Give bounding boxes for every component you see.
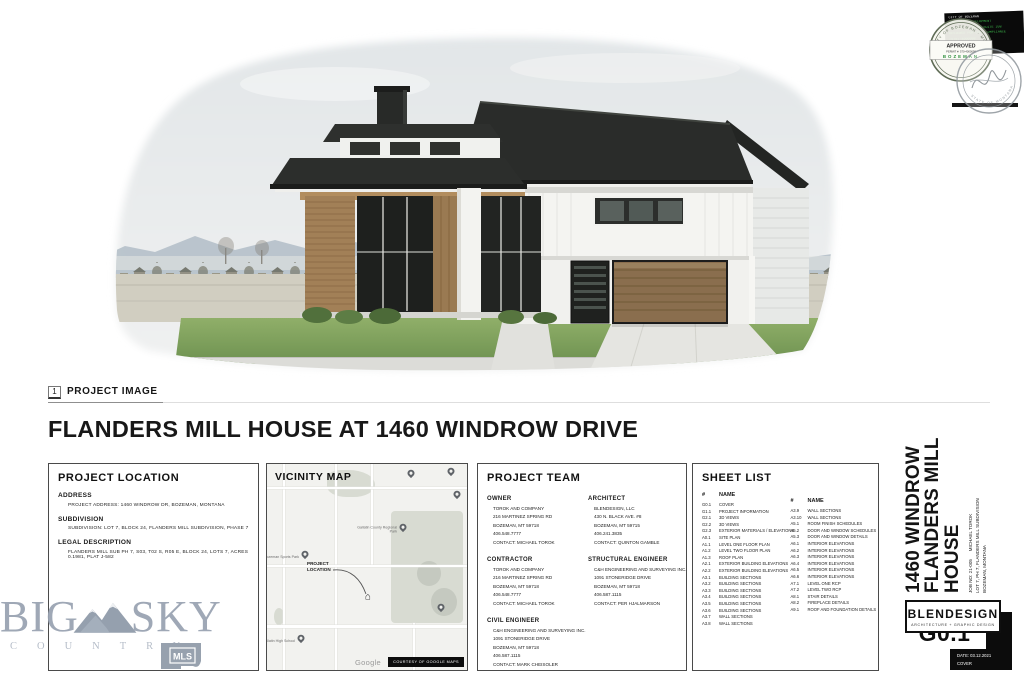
sheet-list-row: A1.3ROOF PLAN: [702, 555, 781, 560]
project-team-columns: OWNERTOROK AND COMPANY216 MARTINEZ SPRIN…: [487, 484, 677, 667]
team-line: 430 N. BLACK AVE. #8: [594, 514, 677, 519]
team-line: 406.241.3835: [594, 531, 677, 536]
sheet-list-row: A3.1BUILDING SECTIONS: [702, 575, 781, 580]
sheet-number-header: #: [702, 492, 719, 498]
team-line: 406.587.1115: [493, 653, 576, 658]
sheet-number-cell: A6.3: [791, 554, 808, 559]
location-section-text: FLANDERS MILL SUB PH 7, S03, T02 S, R05 …: [68, 550, 249, 560]
sheet-list-row: A8.2FIREPLACE DETAILS: [791, 600, 870, 605]
sheet-list-row: A3.7WALL SECTIONS: [702, 614, 781, 619]
wood-door: [433, 196, 457, 314]
sheet-number-cell: G0.1: [702, 502, 719, 507]
sheet-number-cell: A2.2: [702, 568, 719, 573]
sheet-number-cell: A8.2: [791, 600, 808, 605]
sheet-list-row: A5.1ROOM FINISH SCHEDULES: [791, 521, 870, 526]
sheet-number-cell: A3.10: [791, 515, 808, 520]
sheet-list-columns: #NAMEG0.1COVERG1.1PROJECT INFORMATIONG2.…: [702, 492, 869, 626]
team-line: TOROK AND COMPANY: [493, 567, 576, 572]
cloud: [510, 53, 740, 83]
vicinity-map: PROJECT LOCATION ⌂ Google COURTESY OF GO…: [267, 464, 467, 670]
sheet-list-row: A3.8WALL SECTIONS: [702, 621, 781, 626]
sheet-number-cell: A6.5: [791, 567, 808, 572]
sheet-list-panel: SHEET LIST #NAMEG0.1COVERG1.1PROJECT INF…: [692, 463, 879, 671]
sheet-name-cell: 3D VIEWS: [719, 522, 739, 527]
sheet-name-cell: LEVEL ONE FLOOR PLAN: [719, 542, 770, 547]
sheet-list-row: A3.4BUILDING SECTIONS: [702, 594, 781, 599]
sheet-name-cell: DOOR AND WINDOW DETAILS: [808, 534, 868, 539]
team-line: C&H ENGINEERING AND SURVEYING INC.: [594, 567, 677, 572]
figure-label: PROJECT IMAGE: [67, 386, 158, 397]
sheet-name-cell: ROOF PLAN: [719, 555, 743, 560]
sheet-number-cell: A5.1: [791, 521, 808, 526]
figure-rule: [48, 402, 990, 403]
sheet-name-cell: ROOF AND FOUNDATION DETAILS: [808, 607, 877, 612]
sheet-name-cell: BUILDING SECTIONS: [719, 581, 761, 586]
sheet-list-row: A6.3INTERIOR ELEVATIONS: [791, 554, 870, 559]
project-team-panel: PROJECT TEAM OWNERTOROK AND COMPANY216 M…: [477, 463, 687, 671]
sheet-list-row: A1.1LEVEL ONE FLOOR PLAN: [702, 542, 781, 547]
sheet-name-cell: 3D VIEWS: [719, 515, 739, 520]
sheet-number-cell: A1.1: [702, 542, 719, 547]
sheet-list-row: G2.23D VIEWS: [702, 522, 781, 527]
map-pin-label: Bozeman Sports Park: [266, 554, 305, 558]
team-role-label: CONTRACTOR: [487, 557, 576, 563]
sheet-name-cell: INTERIOR ELEVATIONS: [808, 574, 855, 579]
team-line: CONTACT: MICHAEL TOROK: [493, 540, 576, 545]
sheet-name-cell: INTERIOR ELEVATIONS: [808, 541, 855, 546]
sheet-list-row: A3.5BUILDING SECTIONS: [702, 601, 781, 606]
sheet-list-row: A7.2LEVEL TWO RCP: [791, 587, 870, 592]
titleblock-project-title: 1460 WINDROW FLANDERS MILL HOUSE: [904, 421, 962, 593]
project-location-marker-icon: ⌂: [365, 592, 371, 603]
architect-logo: BLENDESIGN: [907, 607, 999, 621]
sheet-number-cell: A6.6: [791, 574, 808, 579]
porch-window-2: [481, 196, 541, 312]
team-line: CONTACT: PER HJALMARSON: [594, 601, 677, 606]
project-location-heading: PROJECT LOCATION: [58, 472, 249, 484]
sheet-name-cell: WALL SECTIONS: [719, 621, 753, 626]
team-line: BOZEMAN, MT 59718: [493, 645, 576, 650]
sheet-name-cell: ROOM FINISH SCHEDULES: [808, 521, 863, 526]
porch-window-wall: [357, 196, 433, 312]
sheet-number-cell: A7.2: [791, 587, 808, 592]
team-line: BOZEMAN, MT 59715: [594, 523, 677, 528]
team-line: 406.587.1115: [594, 592, 677, 597]
sheet-name-cell: WALL SECTIONS: [808, 515, 842, 520]
sheet-list-row: A3.10WALL SECTIONS: [791, 515, 870, 520]
sheet-name-cell: STAIR DETAILS: [808, 594, 838, 599]
sheet-name-cell: WALL SECTIONS: [808, 508, 842, 513]
map-project-location-label: PROJECT LOCATION: [307, 561, 343, 573]
sheet-number-cell: A6.4: [791, 561, 808, 566]
titleblock-job-info: JOB NO: 21-005 MICHAEL TOROK LOT 7, PH 7…: [967, 421, 988, 593]
team-line: 406.548.7777: [493, 531, 576, 536]
location-section-label: LEGAL DESCRIPTION: [58, 539, 249, 546]
porch-roof: [270, 158, 527, 188]
sheet-name-cell: COVER: [719, 502, 734, 507]
sheet-number-cell: A3.8: [702, 621, 719, 626]
sheet-list-row: A3.3BUILDING SECTIONS: [702, 588, 781, 593]
sheet-number-cell: G2.3: [702, 528, 719, 533]
project-team-column: OWNERTOROK AND COMPANY216 MARTINEZ SPRIN…: [487, 484, 576, 667]
architect-tagline: ARCHITECTURE + GRAPHIC DESIGN: [907, 623, 999, 627]
team-role-label: ARCHITECT: [588, 496, 677, 502]
sheet-name-cell: INTERIOR ELEVATIONS: [808, 554, 855, 559]
team-line: 1091 STONERIDGE DRIVE: [493, 636, 576, 641]
sheet-list-row: A3.9WALL SECTIONS: [791, 508, 870, 513]
sheet-number-cell: A1.3: [702, 555, 719, 560]
vicinity-map-heading: VICINITY MAP: [275, 471, 351, 483]
sheet-list-row: A5.3DOOR AND WINDOW DETAILS: [791, 534, 870, 539]
team-role-label: STRUCTURAL ENGINEER: [588, 557, 677, 563]
sheet-list-row: G2.3EXTERIOR MATERIALS / ELEVATIONS: [702, 528, 781, 533]
team-line: BOZEMAN, MT 59718: [493, 584, 576, 589]
sheet-list-row: A6.5INTERIOR ELEVATIONS: [791, 567, 870, 572]
sheet-name-cell: EXTERIOR BUILDING ELEVATIONS: [719, 561, 788, 566]
map-courtesy-note: COURTESY OF GOOGLE MAPS: [388, 657, 464, 667]
sheet-name-header: NAME: [719, 492, 735, 498]
team-line: BOZEMAN, MT 59718: [594, 584, 677, 589]
project-location-panel: PROJECT LOCATION ADDRESSPROJECT ADDRESS:…: [48, 463, 259, 671]
sheet-name-cell: FIREPLACE DETAILS: [808, 600, 850, 605]
sheet-list-row: A6.4INTERIOR ELEVATIONS: [791, 561, 870, 566]
team-role-label: OWNER: [487, 496, 576, 502]
sheet-name-cell: BUILDING SECTIONS: [719, 601, 761, 606]
team-line: C&H ENGINEERING AND SURVEYING INC.: [493, 628, 576, 633]
sheet-number-cell: G2.1: [702, 515, 719, 520]
team-line: 216 MARTINEZ SPRING RD: [493, 514, 576, 519]
sheet-number-cell: A2.1: [702, 561, 719, 566]
sheet-number-cell: A3.4: [702, 594, 719, 599]
sheet-list-column: #NAMEG0.1COVERG1.1PROJECT INFORMATIONG2.…: [702, 492, 781, 626]
sheet-number-cell: A5.3: [791, 534, 808, 539]
project-location-sections: ADDRESSPROJECT ADDRESS: 1460 WINDROW DR,…: [58, 492, 249, 560]
sheet-number-cell: A6.1: [791, 541, 808, 546]
sheet-number-cell: A3.2: [702, 581, 719, 586]
sheet-name-cell: LEVEL TWO RCP: [808, 587, 842, 592]
figure-number-box: 1: [48, 386, 61, 399]
team-line: CONTACT: MICHAEL TOROK: [493, 601, 576, 606]
sheet-list-row: G1.1PROJECT INFORMATION: [702, 509, 781, 514]
sheet-name-cell: PROJECT INFORMATION: [719, 509, 769, 514]
project-team-column: ARCHITECTBLENDESIGN, LLC430 N. BLACK AVE…: [588, 484, 677, 667]
architect-logo-box: BLENDESIGN ARCHITECTURE + GRAPHIC DESIGN: [905, 600, 1001, 633]
location-section-label: SUBDIVISION: [58, 516, 249, 523]
sheet-number-cell: A0.1: [702, 535, 719, 540]
sheet-meta: DATE: 03.12.2021 COVER: [957, 652, 991, 667]
sheet-number-cell: A6.2: [791, 548, 808, 553]
engineer-seal-stamp: STATE OF MONTANA: [954, 46, 1024, 116]
sheet-name-cell: INTERIOR ELEVATIONS: [808, 561, 855, 566]
sheet-number-cell: A3.9: [791, 508, 808, 513]
sheet-list-row: A3.6BUILDING SECTIONS: [702, 608, 781, 613]
sheet-number-cell: A3.3: [702, 588, 719, 593]
sheet-list-row: A3.2BUILDING SECTIONS: [702, 581, 781, 586]
map-pin-label: Gallatin County Regional Park: [353, 525, 403, 534]
team-line: 406.548.7777: [493, 592, 576, 597]
sheet-list-row: A0.1SITE PLAN: [702, 535, 781, 540]
team-line: BLENDESIGN, LLC: [594, 506, 677, 511]
sheet-list-row: A7.1LEVEL ONE RCP: [791, 581, 870, 586]
team-line: BOZEMAN, MT 59718: [493, 523, 576, 528]
google-logo: Google: [355, 658, 381, 667]
team-line: CONTACT: MARK CHEISOLER: [493, 662, 576, 667]
page-title: FLANDERS MILL HOUSE AT 1460 WINDROW DRIV…: [48, 416, 638, 443]
sheet-list-row: A9.1ROOF AND FOUNDATION DETAILS: [791, 607, 870, 612]
sheet-list-row: G2.13D VIEWS: [702, 515, 781, 520]
sheet-name-cell: LEVEL TWO FLOOR PLAN: [719, 548, 770, 553]
sheet-list-row: A5.2DOOR AND WINDOW SCHEDULES: [791, 528, 870, 533]
sheet-number-cell: A3.1: [702, 575, 719, 580]
sheet-name: COVER: [957, 660, 991, 668]
sheet-list-row: A6.6INTERIOR ELEVATIONS: [791, 574, 870, 579]
team-line: 216 MARTINEZ SPRING RD: [493, 575, 576, 580]
sheet-list-row: A6.1INTERIOR ELEVATIONS: [791, 541, 870, 546]
sheet-name-cell: BUILDING SECTIONS: [719, 608, 761, 613]
map-pin-label: Gallatin High School: [266, 639, 301, 643]
sheet-list-header: #NAME: [791, 498, 870, 504]
sheet-number-cell: A8.1: [791, 594, 808, 599]
sheet-list-row: A2.1EXTERIOR BUILDING ELEVATIONS: [702, 561, 781, 566]
sheet-name-cell: EXTERIOR BUILDING ELEVATIONS: [719, 568, 788, 573]
sheet-number-cell: A1.2: [702, 548, 719, 553]
sheet-number-cell: G1.1: [702, 509, 719, 514]
sheet-list-row: A2.2EXTERIOR BUILDING ELEVATIONS: [702, 568, 781, 573]
sheet-number-cell: G2.2: [702, 522, 719, 527]
sheet-number-cell: A7.1: [791, 581, 808, 586]
sheet-list-heading: SHEET LIST: [702, 472, 869, 484]
sheet-number-cell: A3.5: [702, 601, 719, 606]
sheet-name-cell: WALL SECTIONS: [719, 614, 753, 619]
sheet-name-cell: BUILDING SECTIONS: [719, 594, 761, 599]
team-line: CONTACT: QUINTON GAMBLE: [594, 540, 677, 545]
sheet-number-cell: A5.2: [791, 528, 808, 533]
garage-door: [614, 262, 726, 322]
sheet-list-header: #NAME: [702, 492, 781, 498]
sheet-name-header: NAME: [808, 498, 824, 504]
sheet-name-cell: LEVEL ONE RCP: [808, 581, 841, 586]
sheet-number-header: #: [791, 498, 808, 504]
sheet-number-cell: A9.1: [791, 607, 808, 612]
sheet-list-row: A6.2INTERIOR ELEVATIONS: [791, 548, 870, 553]
sheet-name-cell: SITE PLAN: [719, 535, 740, 540]
team-line: TOROK AND COMPANY: [493, 506, 576, 511]
sheet-name-cell: BUILDING SECTIONS: [719, 588, 761, 593]
sheet-name-cell: DOOR AND WINDOW SCHEDULES: [808, 528, 877, 533]
location-section-text: PROJECT ADDRESS: 1460 WINDROW DR, BOZEMA…: [68, 503, 249, 508]
sheet-list-column: #NAMEA3.9WALL SECTIONSA3.10WALL SECTIONS…: [791, 498, 870, 626]
sheet-list-row: A1.2LEVEL TWO FLOOR PLAN: [702, 548, 781, 553]
location-section-text: SUBDIVISION: LOT 7, BLOCK 24, FLANDERS M…: [68, 526, 249, 531]
sheet-name-cell: INTERIOR ELEVATIONS: [808, 548, 855, 553]
sheet-name-cell: BUILDING SECTIONS: [719, 575, 761, 580]
vicinity-map-panel: PROJECT LOCATION ⌂ Google COURTESY OF GO…: [266, 463, 468, 671]
sheet-list-row: G0.1COVER: [702, 502, 781, 507]
project-team-heading: PROJECT TEAM: [487, 472, 677, 484]
team-line: 1091 STONERIDGE DRIVE: [594, 575, 677, 580]
sheet-list-row: A8.1STAIR DETAILS: [791, 594, 870, 599]
location-section-label: ADDRESS: [58, 492, 249, 499]
sheet-name-cell: EXTERIOR MATERIALS / ELEVATIONS: [719, 528, 794, 533]
sheet-name-cell: INTERIOR ELEVATIONS: [808, 567, 855, 572]
titleblock-rotated: 1460 WINDROW FLANDERS MILL HOUSE JOB NO:…: [904, 421, 998, 593]
sheet-number-cell: A3.7: [702, 614, 719, 619]
sheet-number-cell: A3.6: [702, 608, 719, 613]
team-role-label: CIVIL ENGINEER: [487, 618, 576, 624]
house-rendering: [85, 12, 845, 377]
sheet-date: DATE: 03.12.2021: [957, 652, 991, 660]
